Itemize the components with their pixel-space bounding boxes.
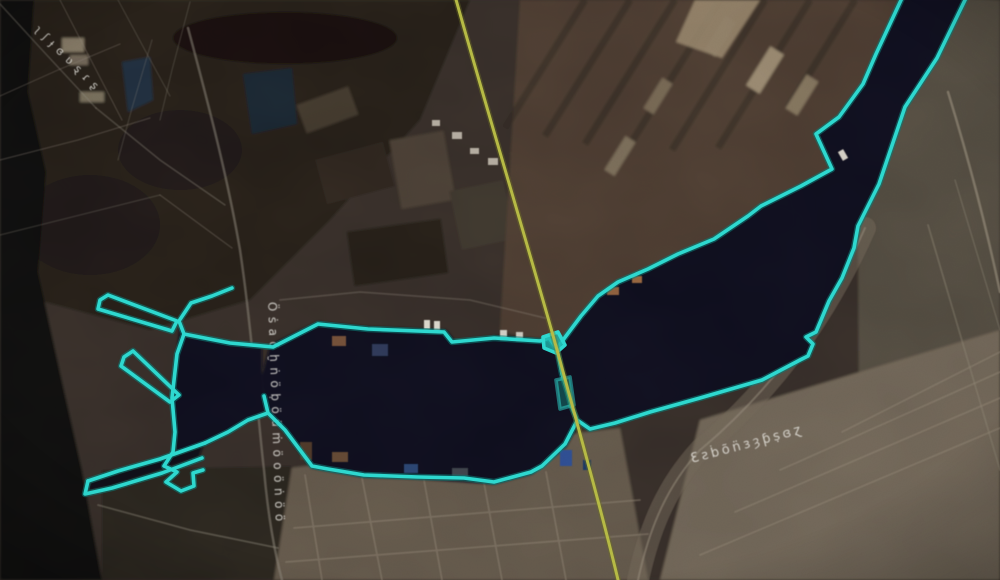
map-canvas: ʅʃɟɞʋȿɾʂ Öṡaöḫṅöḅöüṁöoöṅöö Ɛƨḃõn̈ɜȝƥṣɞɀ (0, 0, 1000, 580)
satellite-map-view: ʅʃɟɞʋȿɾʂ Öṡaöḫṅöḅöüṁöoöṅöö Ɛƨḃõn̈ɜȝƥṣɞɀ (0, 0, 1000, 580)
vignette-overlay (0, 0, 1000, 580)
